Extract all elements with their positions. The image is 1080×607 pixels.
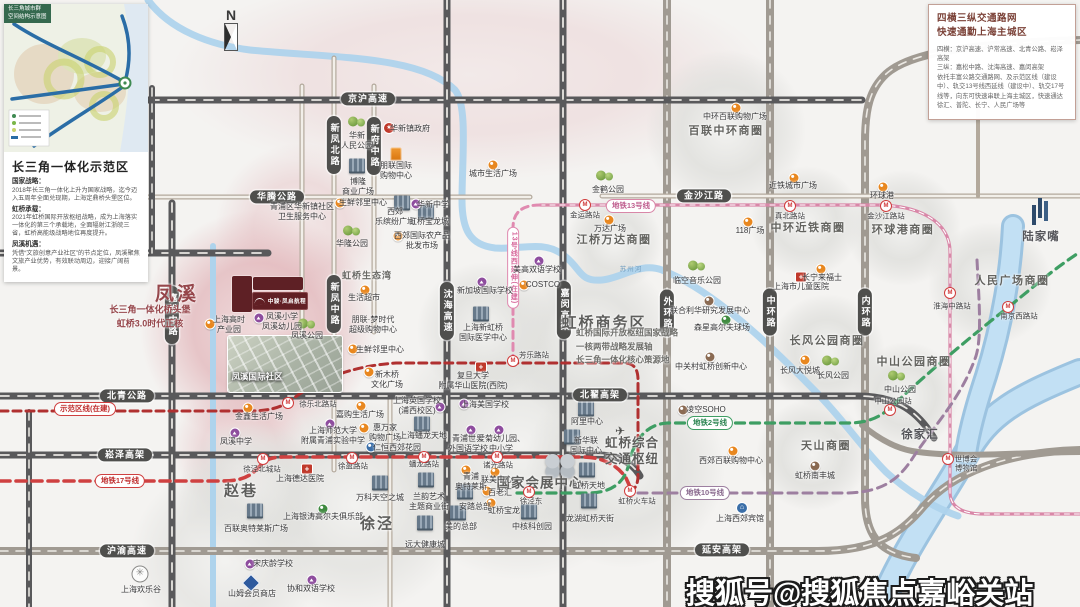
poi-label: 龙湖虹桥天街 (566, 514, 614, 524)
metro-station-label: 金沙江路站 (867, 211, 905, 220)
road-name-label: 北翟高架 (573, 388, 627, 401)
hongqiao-hub-label: 虹桥综合 交通枢纽 (605, 435, 659, 468)
poi-dot-icon (705, 352, 716, 363)
metro-station-icon (523, 486, 535, 498)
inset-section: 凤溪机遇：凭借“文旅创意产业社区”的节点定位，凤溪聚焦文旅产业优势，有效联动周边… (12, 241, 140, 274)
road-name-label: 新凤北路 (327, 116, 341, 174)
buildings-icon (372, 476, 388, 491)
poi-label: 虹桥宝龙城 (409, 217, 449, 227)
poi-label: 联合利华研究发展中心 (670, 306, 750, 316)
district-label: 徐家汇 (901, 428, 939, 442)
poi-label: 新加坡国际学校 (457, 286, 513, 296)
poi-label: 万达广场 (594, 224, 626, 234)
road-name-label: 京沪高速 (341, 92, 395, 105)
metro-station-label: 徐泾北城站 (243, 464, 281, 473)
road-name-label: 崧泽高架 (98, 448, 152, 461)
poi-label: 凤溪公园 (291, 331, 323, 341)
poi-label: 复旦大学 附属华山医院(西院) (438, 371, 507, 391)
inset-section-body: 凭借“文旅创意产业社区”的节点定位，凤溪聚焦文旅产业优势，有效联动周边，迎接广阔… (12, 250, 140, 273)
project-land-plot (232, 276, 252, 312)
inset-region-map: 长三角城市群 空间结构示意图 (4, 4, 148, 152)
poi-dot-icon (810, 461, 821, 472)
inset-map-tag: 长三角城市群 空间结构示意图 (4, 4, 51, 23)
poi-label: 百老汇 (488, 488, 512, 498)
poi-label: 朋联·梦时代 超级购物中心 (349, 315, 397, 335)
poi-label: 协和双语学校 (287, 584, 335, 594)
poi-label: 临空音乐公园 (673, 276, 721, 286)
poi-label: 百联奥特莱斯广场 (224, 524, 288, 534)
business-circle-label: 百联中环商圈 (689, 125, 764, 139)
metro-line-label: 地铁17号线 (95, 474, 145, 488)
poi-label: 上海英国学校 (浦西校区) (393, 396, 441, 416)
poi-label: 上海市儿童医院 (773, 282, 829, 292)
poi-label: 凌空SOHO (686, 405, 726, 415)
project-logo: 中骏·凤启航程 (252, 292, 308, 310)
poi-label: 美的总部 (445, 522, 477, 532)
metro-line-label: 地铁10号线 (680, 486, 730, 500)
business-circle-label: 江桥万达商圈 (577, 234, 652, 248)
poi-label: 上海蟠龙天地 (399, 431, 447, 441)
poi-label: 上海新虹桥 国际医学中心 (459, 323, 507, 343)
metro-station-label: 徐泾东 (520, 496, 543, 505)
poi-label: 朋联国际 购物中心 (380, 161, 412, 181)
business-circle-label: 环球港商圈 (872, 224, 935, 238)
buildings-icon (581, 494, 597, 509)
poi-label: 惠万家 购物广场 (369, 423, 401, 443)
business-circle-label: 中环近铁商圈 (771, 222, 846, 236)
project-logo-text: 中骏·凤启航程 (268, 297, 306, 305)
inset-section-heading: 虹桥承载： (12, 206, 140, 215)
metro-station-icon (942, 453, 954, 465)
sohu-watermark: 搜狐号@搜狐焦点嘉峪关站 (686, 570, 1033, 607)
road-name-label: 金沙江路 (677, 189, 731, 202)
poi-label: 虹桥宝龙 (488, 506, 520, 516)
buildings-icon (578, 402, 594, 417)
buildings-icon (521, 505, 537, 520)
park-trees-icon (348, 116, 366, 129)
marketing-map: 中骏·凤启航程 N 京沪高速华腾公路沪常高速北青公路崧泽高架沪渝高速延安高架北翟… (0, 0, 1080, 607)
metro-station-icon (257, 453, 269, 465)
poi-label: 金鑫生活广场 (235, 412, 283, 422)
poi-label: 安踏总部 (459, 502, 491, 512)
district-tagline: 长三角一体化桥头堡 虹桥3.0时代正核 (109, 303, 190, 332)
metro-station-icon (624, 485, 636, 497)
metro-station-label: 芳乐路站 (519, 350, 549, 359)
poi-label: 环球港 (870, 191, 894, 201)
buildings-icon (418, 473, 434, 488)
poi-label: 虹桥南丰城 (795, 471, 835, 481)
poi-label: 上海美国学校 (461, 400, 509, 410)
poi-label: 上海德达医院 (276, 474, 324, 484)
ferris-wheel-icon (132, 566, 149, 583)
poi-label: 近铁城市广场 (769, 181, 817, 191)
mall-icon (391, 148, 402, 161)
road-name-label: 北青公路 (100, 389, 154, 402)
inset-sections: 国家战略：2018年长三角一体化上升为国家战略，迄今迈入五周年全面兑现期，上海定… (12, 178, 140, 274)
poi-label: 仁恒西郊花园 (373, 443, 421, 453)
poi-label: 上海高时 产业园 (213, 315, 245, 335)
poi-label: 爱菊幼儿园、 中小学 (477, 434, 525, 454)
business-circle-label: 中山公园商圈 (877, 356, 952, 370)
metro-station-label: 淮海中路站 (933, 301, 971, 310)
metro-station-label: 徐乐北路站 (299, 399, 337, 408)
poi-dot-icon (800, 355, 811, 366)
poi-label: 上海西郊宾馆 (716, 514, 764, 524)
inset-panel: 长三角城市群 空间结构示意图 长三角一体化示范区 国家战略：2018年长三角一体… (4, 4, 148, 282)
business-circle-label: 人民广场商圈 (975, 275, 1050, 289)
poi-label: 青浦区华新镇社区 卫生服务中心 (270, 202, 334, 222)
road-name-label: 沪渝高速 (100, 544, 154, 557)
poi-label: 凤溪小学 凤溪幼儿园 (262, 312, 302, 332)
metro-line-label: 地铁2号线 (687, 416, 733, 430)
district-label: 陆家嘴 (1022, 230, 1060, 244)
metro-station-icon (944, 287, 956, 299)
inset-title: 长三角一体化示范区 (12, 158, 140, 175)
poi-label: 山姆会员商店 (228, 589, 276, 599)
poi-label: 中关村虹桥创新中心 (675, 362, 747, 372)
poi-label: 联美中心 (481, 475, 513, 485)
park-trees-icon (343, 225, 361, 238)
poi-label: 博隆 商业广场 (342, 177, 374, 197)
poi-label: 万科天空之城 (356, 493, 404, 503)
poi-label: 中核科创园 (512, 522, 552, 532)
inset-section: 国家战略：2018年长三角一体化上升为国家战略，迄今迈入五周年全面兑现期，上海定… (12, 178, 140, 203)
fengxi-community-photo (228, 336, 342, 392)
district-label: 赵巷 (224, 483, 258, 502)
business-circle-label: 天山商圈 (801, 440, 851, 454)
inset-section: 虹桥承载：2021年虹桥国际开放枢纽战略，成为上海落实一体化的第三个承载地，全面… (12, 206, 140, 239)
inset-map-graphic (4, 4, 148, 152)
metro-line-label: 地铁13号线 (606, 199, 656, 213)
poi-label: 远大健康城 (405, 540, 445, 550)
poi-label: 凤溪中学 (220, 437, 252, 447)
compass-needle-icon (225, 24, 237, 50)
poi-label: COSTCO (526, 280, 560, 290)
road-name-label: 延安高架 (695, 543, 749, 556)
district-description: 虹桥国际开放枢纽国家战略 一核两带战略发展轴 长三角一体化核心策源地 (576, 327, 678, 368)
park-trees-icon (596, 170, 614, 183)
compass-n-label: N (218, 8, 244, 22)
road-name-label: 内环路 (858, 289, 872, 336)
business-circle-label: 长风公园商圈 (790, 335, 865, 349)
river-label: 苏州河 (620, 266, 643, 274)
hotel-icon (736, 502, 748, 514)
poi-label: 生鲜邻里中心 (356, 345, 404, 355)
traffic-info-box: 四横三纵交通路网 快速通勤上海主城区 四横：京沪高速、沪常高速、北青公路、崧泽高… (928, 4, 1076, 120)
metro-station-icon (418, 451, 430, 463)
poi-label: 华新 人民公园 (341, 131, 373, 151)
inset-section-body: 2021年虹桥国际开放枢纽战略，成为上海落实一体化的第三个承载地，全面辐射江浙皖… (12, 214, 137, 237)
poi-label: 森星高尔夫球场 (694, 323, 750, 333)
business-circle-label: 虹桥生态湾 (342, 270, 392, 281)
metro-line-label: 示范区线(在建) (54, 402, 116, 416)
poi-label: 中山公园 (884, 385, 916, 395)
metro-station-label: 虹桥火车站 (618, 496, 656, 505)
poi-label: 上海银涛高尔夫俱乐部 (283, 512, 363, 522)
metro-station-icon (507, 355, 519, 367)
inset-section-heading: 凤溪机遇： (12, 241, 140, 250)
poi-label: 118广场 (736, 226, 765, 236)
poi-dot-icon (728, 446, 739, 457)
poi-label: 宋庆龄学校 (253, 559, 293, 569)
poi-label: 长风公园 (817, 371, 849, 381)
poi-label: 新木桥 文化广场 (371, 370, 403, 390)
metro-station-icon (282, 397, 294, 409)
poi-label: 长风大悦城 (780, 366, 820, 376)
park-trees-icon (822, 355, 840, 368)
poi-label: 上海师范大学 附属青浦实验中学 (301, 426, 365, 446)
road-name-label: 中环路 (763, 289, 777, 336)
park-trees-icon (688, 260, 706, 273)
metro-station-label: 金运路站 (570, 210, 600, 219)
metro-station-label: 真北路站 (775, 211, 805, 220)
poi-label: 中环百联购物广场 (703, 112, 767, 122)
district-label: 徐泾 (360, 516, 394, 535)
metro-station-icon (880, 200, 892, 212)
metro-station-icon (491, 451, 503, 463)
buildings-icon (414, 417, 430, 432)
poi-label: 西郊国际农产品 批发市场 (394, 231, 450, 251)
poi-label: 兰韵艺术 主题商业街 (409, 492, 449, 512)
lujiazui-towers-icon (1038, 198, 1042, 218)
compass: N (218, 8, 244, 52)
poi-label: 虹桥天地 (573, 481, 605, 491)
poi-label: 华新镇政府 (390, 124, 430, 134)
info-box-title-line1: 四横三纵交通路网 (937, 12, 1067, 26)
necc-clover-icon (543, 454, 577, 478)
poi-label: 西郊百联购物中心 (699, 456, 763, 466)
buildings-icon (473, 307, 489, 322)
inset-section-body: 2018年长三角一体化上升为国家战略，迄今迈入五周年全面兑现期，上海定鼎桥头堡区… (12, 187, 137, 202)
road-name-label: 沈海高速 (440, 282, 454, 340)
poi-label: 美高双语学校 (513, 265, 561, 275)
info-box-title-line2: 快速通勤上海主城区 (937, 26, 1067, 40)
road-name-label: 新凤中路 (327, 275, 341, 333)
poi-label: 金鹤公园 (592, 185, 624, 195)
poi-label: 生活超市 (348, 293, 380, 303)
logo-swoosh-icon (253, 297, 265, 305)
poi-label: 上海欢乐谷 (121, 585, 161, 595)
inset-section-heading: 国家战略： (12, 178, 140, 187)
poi-dot-icon (704, 296, 715, 307)
metro-station-icon (784, 200, 796, 212)
poi-label: 新华联 国际中心 (570, 436, 602, 456)
fengxi-community-photo-label: 凤溪国际社区 (231, 372, 282, 383)
buildings-icon (349, 159, 365, 174)
hospital-icon (301, 464, 313, 475)
metro-station-icon (346, 452, 358, 464)
buildings-icon (247, 504, 263, 519)
park-trees-icon (888, 370, 906, 383)
info-box-body: 四横：京沪高速、沪常高速、北青公路、崧泽高架 三纵：嘉松中路、沈海高速、嘉闵高架… (937, 45, 1067, 111)
poi-label: 嘉购生活广场 (336, 410, 384, 420)
metro-station-label: 世博会 博物馆 (955, 455, 978, 474)
metro-station-icon (579, 199, 591, 211)
buildings-icon (417, 516, 433, 531)
poi-label: 城市生活广场 (469, 169, 517, 179)
metro-station-icon (1002, 301, 1014, 313)
poi-label: 阿里中心 (571, 417, 603, 427)
metro-station-icon (884, 404, 896, 416)
poi-label: 华新中学 (417, 200, 449, 210)
poi-label: 华隆公园 (336, 239, 368, 249)
project-land-plot (253, 277, 303, 290)
